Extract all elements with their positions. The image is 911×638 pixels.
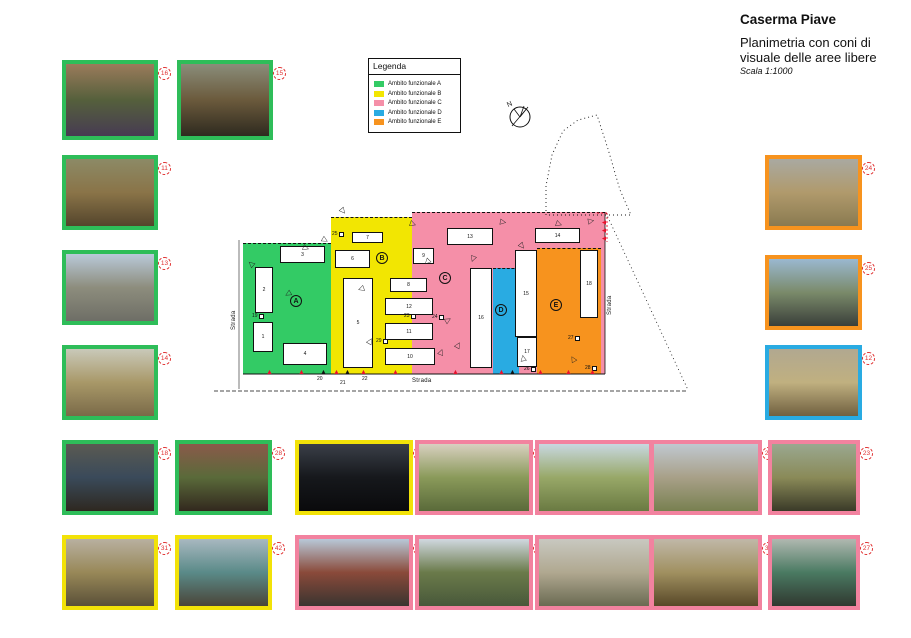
- legend-item-label: Ambito funzionale C: [388, 100, 442, 106]
- building-number: 1: [262, 334, 265, 340]
- point-marker: 26: [524, 367, 536, 372]
- building: 8: [390, 278, 427, 292]
- building: 2: [255, 267, 273, 313]
- building: 16: [470, 268, 492, 368]
- photo-thumbnail: 23: [768, 440, 860, 515]
- building-number: 10: [407, 354, 413, 360]
- photo-image: [66, 64, 154, 136]
- photo-thumbnail: 25: [765, 255, 862, 330]
- photo-image: [539, 539, 649, 606]
- photo-image: [772, 539, 856, 606]
- photo-number-badge: 24: [862, 162, 875, 175]
- point-marker: 19: [252, 314, 264, 319]
- building: 13: [447, 228, 493, 245]
- legend: Legenda Ambito funzionale A Ambito funzi…: [368, 58, 461, 133]
- photo-image: [179, 539, 268, 606]
- triangle-marker-icon: ▲: [266, 369, 273, 376]
- photo-number-badge: 23: [860, 447, 873, 460]
- street-label: Strada: [607, 296, 613, 315]
- zone-letter: E: [554, 302, 559, 309]
- photo-thumbnail: 14: [62, 345, 158, 420]
- point-square-icon: [259, 314, 264, 319]
- photo-thumbnail: 34: [535, 535, 653, 610]
- edge-point-number: 20: [317, 377, 323, 382]
- legend-item-label: Ambito funzionale E: [388, 119, 441, 125]
- building: 17: [517, 337, 537, 367]
- photo-image: [66, 349, 154, 416]
- photo-image: [654, 539, 758, 606]
- building-number: 13: [467, 234, 473, 240]
- triangle-marker-icon: ▲: [498, 369, 505, 376]
- triangle-marker-icon: ▲: [601, 227, 608, 234]
- building-number: 2: [263, 287, 266, 293]
- legend-item: Ambito funzionale B: [374, 91, 455, 97]
- photo-thumbnail: 15: [177, 60, 273, 140]
- point-number: 26: [524, 367, 530, 372]
- photo-number-badge: 11: [158, 162, 171, 175]
- legend-item: Ambito funzionale E: [374, 119, 455, 125]
- zone-letter-badge: C: [439, 272, 451, 284]
- north-compass-icon: N: [505, 98, 535, 135]
- legend-swatch-icon: [374, 81, 384, 87]
- photo-number-badge: 28: [272, 447, 285, 460]
- building: 18: [580, 250, 598, 318]
- point-square-icon: [339, 232, 344, 237]
- triangle-marker-icon: ▲: [589, 369, 596, 376]
- point-marker: 25: [332, 232, 344, 237]
- photo-image: [299, 444, 409, 511]
- legend-swatch-icon: [374, 110, 384, 116]
- legend-swatch-icon: [374, 91, 384, 97]
- point-square-icon: [531, 367, 536, 372]
- photo-number-badge: 14: [158, 352, 171, 365]
- photo-image: [772, 444, 856, 511]
- zone-letter: D: [498, 307, 503, 314]
- building-number: 11: [406, 329, 411, 335]
- building: 11: [385, 323, 433, 340]
- photo-thumbnail: 42: [175, 535, 272, 610]
- edge-point-number: 22: [362, 377, 368, 382]
- photo-image: [769, 159, 858, 226]
- point-number: 19: [252, 314, 258, 319]
- photo-thumbnail: 24: [765, 155, 862, 230]
- building-number: 16: [478, 315, 484, 321]
- photo-image: [66, 444, 154, 511]
- point-square-icon: [383, 339, 388, 344]
- photo-thumbnail: 11: [62, 155, 158, 230]
- photo-number-badge: 27: [860, 542, 873, 555]
- zone-letter-badge: E: [550, 299, 562, 311]
- title-block: Caserma Piave Planimetria con coni di vi…: [740, 12, 905, 76]
- photo-image: [769, 259, 858, 326]
- building: 6: [335, 250, 370, 268]
- point-number: 29: [376, 339, 382, 344]
- point-number: 23: [404, 314, 410, 319]
- zone-letter: B: [379, 255, 384, 262]
- triangle-marker-icon: ▲: [344, 369, 351, 376]
- point-number: 25: [332, 232, 338, 237]
- building: 14: [535, 228, 580, 243]
- photo-image: [181, 64, 269, 136]
- photo-thumbnail: 29: [650, 440, 762, 515]
- photo-image: [66, 539, 154, 606]
- building: 4: [283, 343, 327, 365]
- photo-thumbnail: 35: [650, 535, 762, 610]
- photo-image: [66, 159, 154, 226]
- photo-thumbnail: 30: [295, 535, 413, 610]
- photo-number-badge: 31: [158, 542, 171, 555]
- photo-thumbnail: 18: [62, 440, 158, 515]
- photo-image: [419, 444, 529, 511]
- point-marker: 29: [376, 339, 388, 344]
- building-number: 5: [357, 320, 360, 326]
- building: 7: [352, 232, 383, 243]
- photo-number-badge: 12: [862, 352, 875, 365]
- point-number: 27: [568, 336, 574, 341]
- photo-image: [539, 444, 649, 511]
- photo-thumbnail: 41: [415, 535, 533, 610]
- triangle-marker-icon: ▲: [565, 369, 572, 376]
- triangle-marker-icon: ▲: [601, 219, 608, 226]
- zone-letter-badge: D: [495, 304, 507, 316]
- sheet-title: Caserma Piave: [740, 12, 905, 27]
- building: 1: [253, 322, 273, 352]
- building-number: 7: [366, 235, 369, 241]
- photo-number-badge: 15: [273, 67, 286, 80]
- triangle-marker-icon: ▲: [452, 369, 459, 376]
- photo-number-badge: 16: [158, 67, 171, 80]
- building-number: 8: [407, 282, 410, 288]
- photo-image: [299, 539, 409, 606]
- zone-letter-badge: B: [376, 252, 388, 264]
- zone-letter: C: [442, 275, 447, 282]
- building-number: 4: [304, 351, 307, 357]
- legend-swatch-icon: [374, 100, 384, 106]
- photo-image: [654, 444, 758, 511]
- building-number: 12: [406, 304, 412, 310]
- building-number: 14: [555, 233, 561, 239]
- photo-thumbnail: 31: [62, 535, 158, 610]
- sheet-subtitle: Planimetria con coni di visuale delle ar…: [740, 36, 892, 65]
- point-number: 24: [432, 315, 438, 320]
- legend-items: Ambito funzionale A Ambito funzionale B …: [369, 75, 460, 132]
- photo-number-badge: 18: [158, 447, 171, 460]
- photo-number-badge: 25: [862, 262, 875, 275]
- point-square-icon: [575, 336, 580, 341]
- legend-item-label: Ambito funzionale D: [388, 110, 442, 116]
- photo-image: [179, 444, 268, 511]
- legend-item: Ambito funzionale A: [374, 81, 455, 87]
- triangle-marker-icon: ▲: [360, 369, 367, 376]
- edge-point-number: 21: [340, 381, 346, 386]
- legend-item: Ambito funzionale C: [374, 100, 455, 106]
- photo-image: [66, 254, 154, 321]
- triangle-marker-icon: ▲: [601, 235, 608, 242]
- photo-thumbnail: 26: [295, 440, 413, 515]
- sheet-scale: Scala 1:1000: [740, 66, 905, 76]
- point-marker: 27: [568, 336, 580, 341]
- building: 10: [385, 348, 435, 365]
- building-number: 15: [523, 291, 529, 297]
- photo-thumbnail: 28: [175, 440, 272, 515]
- photo-thumbnail: 12: [765, 345, 862, 420]
- photo-thumbnail: 38: [535, 440, 653, 515]
- plan-sheet: { "header": { "title": "Caserma Piave", …: [0, 0, 911, 638]
- legend-item-label: Ambito funzionale B: [388, 91, 441, 97]
- zone-letter-badge: A: [290, 295, 302, 307]
- legend-title: Legenda: [369, 59, 460, 75]
- north-label: N: [506, 100, 514, 108]
- point-square-icon: [411, 314, 416, 319]
- triangle-marker-icon: ▲: [537, 369, 544, 376]
- point-marker: 23: [404, 314, 416, 319]
- street-label: Strada: [412, 378, 431, 384]
- triangle-marker-icon: ▲: [320, 369, 327, 376]
- legend-swatch-icon: [374, 119, 384, 125]
- triangle-marker-icon: ▲: [333, 369, 340, 376]
- triangle-marker-icon: ▲: [509, 369, 516, 376]
- legend-item: Ambito funzionale D: [374, 110, 455, 116]
- photo-thumbnail: 27: [768, 535, 860, 610]
- photo-thumbnail: 13: [62, 250, 158, 325]
- photo-thumbnail: 16: [62, 60, 158, 140]
- triangle-marker-icon: ▲: [392, 369, 399, 376]
- view-cone-icon: ◁: [338, 206, 348, 216]
- building-number: 18: [586, 281, 592, 287]
- photo-image: [769, 349, 858, 416]
- building-number: 6: [351, 256, 354, 262]
- photo-image: [419, 539, 529, 606]
- street-label: Strada: [231, 311, 237, 330]
- building: 15: [515, 250, 537, 337]
- triangle-marker-icon: ▲: [298, 369, 305, 376]
- photo-number-badge: 13: [158, 257, 171, 270]
- legend-item-label: Ambito funzionale A: [388, 81, 441, 87]
- photo-thumbnail: 33: [415, 440, 533, 515]
- zone-letter: A: [293, 298, 298, 305]
- photo-number-badge: 42: [272, 542, 285, 555]
- view-cone-icon: ◁: [587, 217, 594, 226]
